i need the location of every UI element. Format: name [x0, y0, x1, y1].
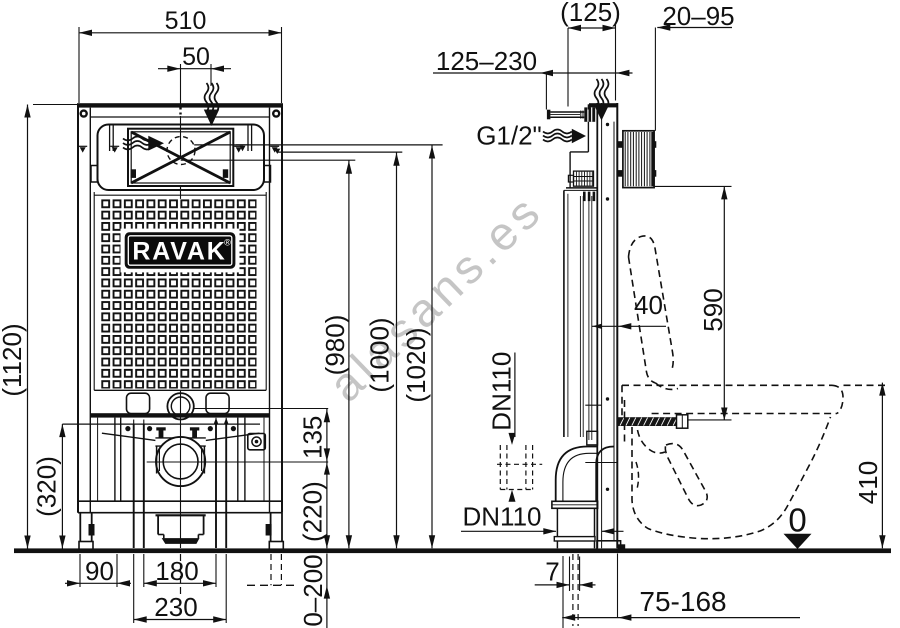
- svg-text:590: 590: [698, 288, 728, 331]
- svg-text:20–95: 20–95: [662, 1, 734, 31]
- svg-text:410: 410: [853, 461, 883, 504]
- svg-text:(1020): (1020): [401, 327, 431, 402]
- svg-text:0: 0: [788, 502, 806, 539]
- svg-text:510: 510: [165, 7, 207, 35]
- svg-text:DN110: DN110: [462, 502, 541, 532]
- svg-text:RAVAK: RAVAK: [132, 238, 226, 266]
- svg-text:(125): (125): [560, 0, 621, 27]
- svg-text:135: 135: [298, 416, 328, 459]
- svg-text:180: 180: [155, 556, 198, 586]
- svg-text:G1/2": G1/2": [476, 121, 542, 151]
- svg-text:90: 90: [85, 556, 114, 586]
- svg-text:230: 230: [154, 592, 197, 622]
- svg-text:(220): (220): [298, 481, 328, 542]
- svg-text:125–230: 125–230: [436, 46, 537, 76]
- svg-text:75-168: 75-168: [639, 586, 726, 617]
- svg-text:(320): (320): [32, 456, 62, 517]
- svg-text:50: 50: [182, 43, 210, 71]
- svg-text:7: 7: [545, 557, 559, 587]
- svg-text:(1000): (1000): [365, 317, 395, 392]
- svg-text:0–200: 0–200: [298, 554, 328, 626]
- svg-text:(980): (980): [320, 315, 350, 376]
- svg-text:®: ®: [224, 238, 231, 248]
- svg-text:DN110: DN110: [487, 352, 517, 431]
- svg-text:(1120): (1120): [0, 323, 27, 396]
